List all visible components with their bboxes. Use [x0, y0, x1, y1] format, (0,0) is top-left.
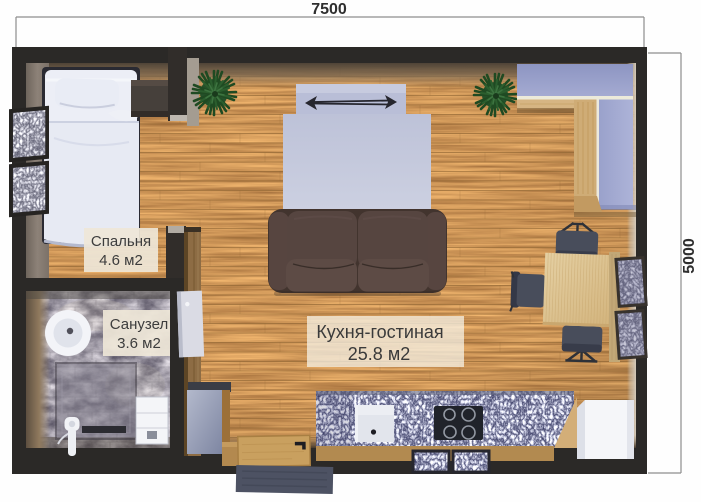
svg-text:Санузел: Санузел	[110, 316, 168, 333]
svg-text:4.6 м2: 4.6 м2	[99, 252, 143, 269]
svg-text:Спальня: Спальня	[91, 233, 151, 250]
svg-text:3.6 м2: 3.6 м2	[117, 335, 161, 352]
svg-text:5000: 5000	[681, 238, 698, 274]
svg-text:7500: 7500	[311, 1, 347, 18]
svg-text:25.8 м2: 25.8 м2	[348, 344, 410, 364]
svg-text:Кухня-гостиная: Кухня-гостиная	[316, 322, 443, 342]
